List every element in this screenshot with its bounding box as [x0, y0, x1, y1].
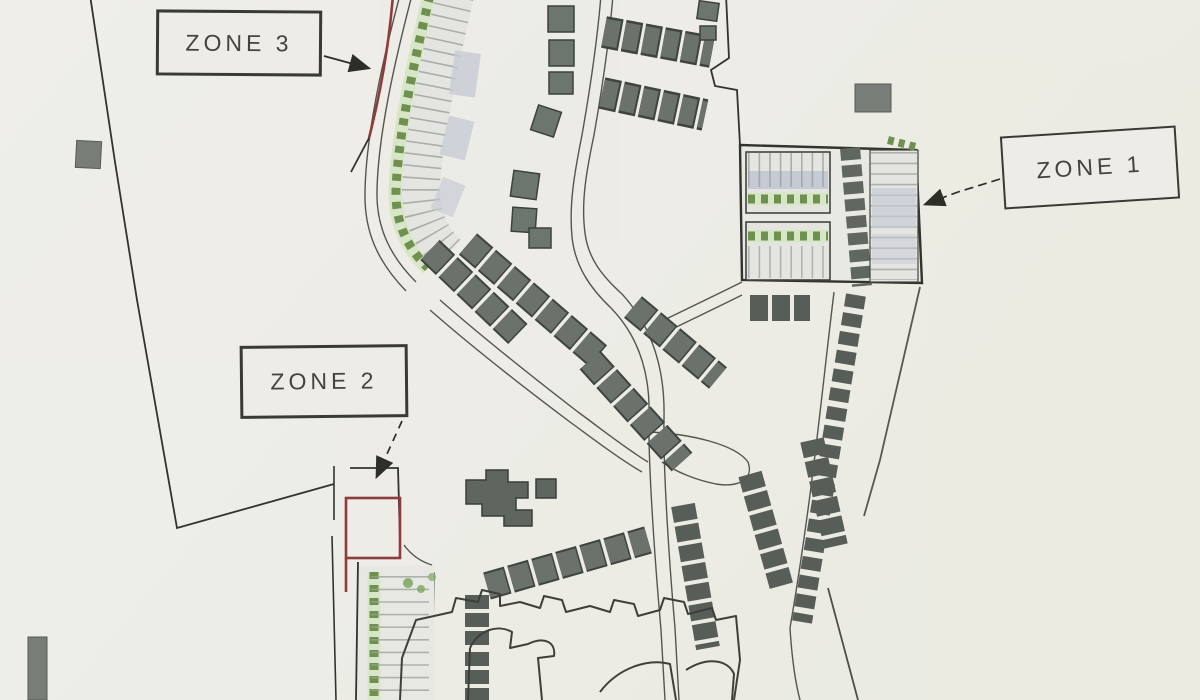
outbuilding-block	[536, 479, 556, 498]
zone-2-label: ZONE 2	[240, 344, 409, 419]
zone-3-label: ZONE 3	[156, 9, 322, 76]
zone-3-label-text: ZONE 3	[185, 29, 292, 57]
building-row	[604, 32, 712, 52]
building-row	[802, 295, 856, 622]
survey-marker	[855, 84, 891, 112]
zone1-parking-court	[740, 140, 922, 286]
building-row	[633, 307, 718, 378]
site-plan-drawing	[0, 0, 1200, 700]
building-row	[487, 540, 648, 586]
cross-building	[466, 470, 556, 526]
site-plan-scan: ZONE 3 ZONE 2 ZONE 1	[0, 0, 1200, 700]
zone-2-label-text: ZONE 2	[270, 367, 377, 395]
zone2-red-boundary	[346, 498, 400, 558]
building-row	[750, 474, 782, 588]
survey-marker	[28, 637, 47, 700]
building-row	[683, 505, 708, 648]
zone-1-label-text: ZONE 1	[1036, 151, 1145, 185]
survey-marker	[75, 140, 101, 168]
zone2-parking-area	[332, 466, 436, 700]
zone3-arrow	[324, 56, 368, 68]
zone-1-label: ZONE 1	[1000, 126, 1180, 210]
